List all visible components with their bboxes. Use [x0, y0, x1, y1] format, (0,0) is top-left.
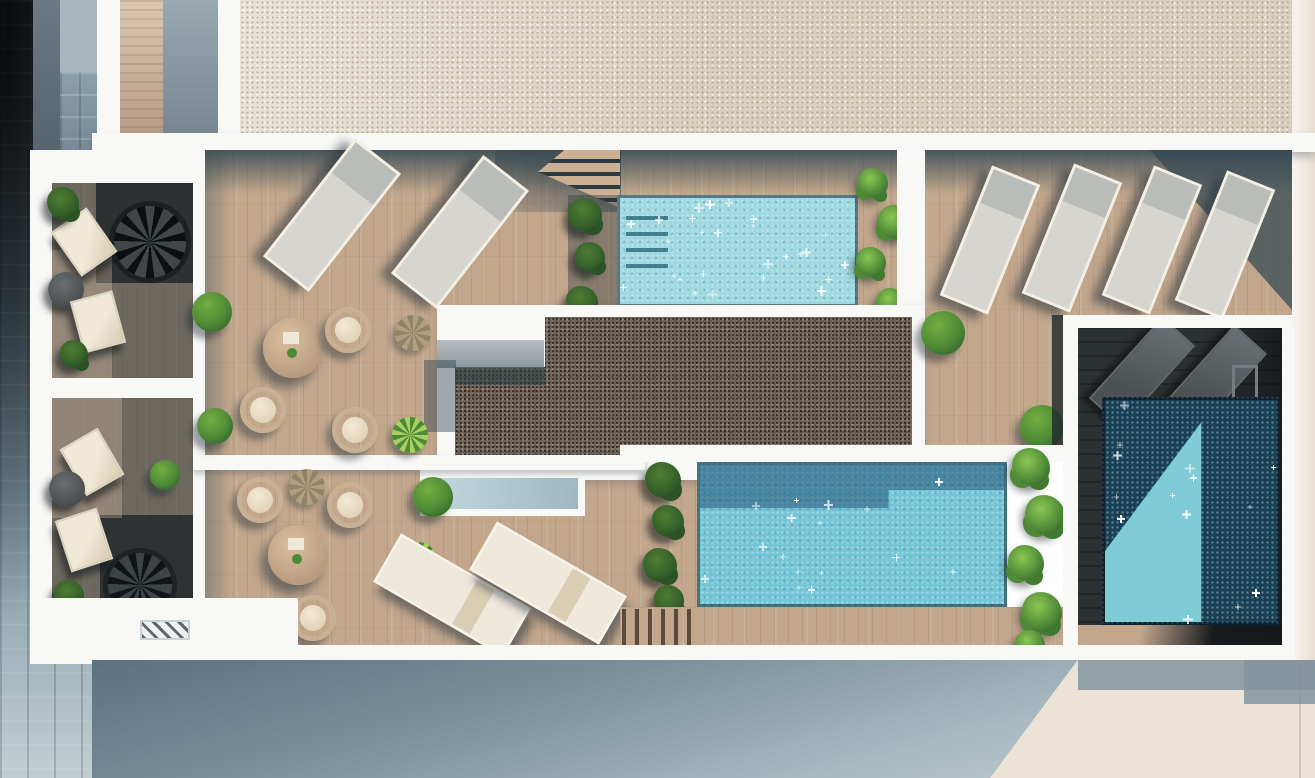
- pool-step: [626, 232, 668, 236]
- neighbor-wall-light: [60, 0, 97, 72]
- water-glint: [714, 229, 722, 237]
- wood-facade-strip: [120, 0, 163, 140]
- water-glint: [783, 254, 789, 260]
- water-glint: [1248, 505, 1252, 509]
- water-glint: [802, 248, 811, 257]
- chair-cushion: [247, 487, 273, 513]
- alcove-north-wall: [52, 150, 205, 183]
- serving-tray: [288, 538, 304, 550]
- water-glint: [1114, 494, 1119, 499]
- water-glint: [1113, 451, 1123, 461]
- wicker-chair: [240, 387, 286, 433]
- water-glint: [893, 554, 900, 561]
- water-glint: [787, 514, 795, 522]
- dried-grass-plant: [395, 315, 431, 351]
- dried-grass-plant: [289, 469, 325, 505]
- parapet-wall: [97, 0, 120, 152]
- water-glint: [761, 275, 767, 281]
- water-glint: [841, 261, 849, 269]
- planter-bush: [413, 477, 453, 517]
- serving-tray: [283, 332, 299, 344]
- chair-cushion: [300, 605, 326, 631]
- main-pool-north-wall: [620, 445, 1078, 462]
- water-glint: [705, 200, 715, 210]
- main-pool: [697, 462, 1007, 607]
- climbing-plant: [1025, 495, 1065, 535]
- spiral-staircase: [114, 206, 186, 278]
- alcove-east-wall: [193, 150, 205, 660]
- climbing-plant: [1008, 545, 1044, 581]
- water-glint: [819, 571, 824, 576]
- wicker-chair: [332, 407, 378, 453]
- water-glint: [950, 569, 956, 575]
- planter-plant: [568, 198, 602, 232]
- planter-bush: [921, 311, 965, 355]
- palm-plant: [392, 417, 428, 453]
- water-glint: [818, 521, 822, 525]
- water-glint: [1117, 515, 1125, 523]
- water-glint: [725, 199, 733, 207]
- chair-cushion: [342, 417, 368, 443]
- climbing-plant: [856, 247, 886, 277]
- water-glint: [666, 239, 671, 244]
- water-glint: [678, 277, 683, 282]
- climbing-plant: [858, 168, 888, 198]
- planter-bush: [150, 460, 180, 490]
- wicker-chair: [327, 482, 373, 528]
- water-glint: [817, 286, 827, 296]
- water-glint: [689, 215, 696, 222]
- water-glint: [763, 259, 773, 269]
- water-glint: [692, 290, 698, 296]
- water-glint: [750, 215, 757, 222]
- water-glint: [620, 284, 627, 291]
- vent-grate: [140, 620, 190, 640]
- right-edge-wall: [1292, 0, 1315, 662]
- wicker-chair: [325, 307, 371, 353]
- gray-facade-strip: [163, 0, 218, 140]
- rooftop-terrace-render: [0, 0, 1315, 778]
- water-glint: [751, 224, 755, 228]
- wicker-chair: [237, 477, 283, 523]
- water-glint: [1120, 401, 1129, 410]
- right-court-north-wall: [1063, 315, 1292, 328]
- water-glint: [701, 271, 707, 277]
- plunge-pool: [1102, 397, 1280, 625]
- right-court-east-wall: [1282, 327, 1295, 660]
- water-glint: [825, 276, 832, 283]
- sunlit-water-triangle: [1105, 400, 1277, 622]
- deck-left-shadow: [205, 150, 231, 660]
- climbing-plant: [1022, 592, 1062, 632]
- planter-plant: [575, 242, 605, 272]
- pool-step: [626, 264, 668, 268]
- plaza-shadow-step: [1244, 660, 1315, 704]
- planter-bush: [192, 292, 232, 332]
- deck-slat-steps: [622, 609, 697, 649]
- wall-shadow: [424, 360, 456, 432]
- wall-seam: [1299, 660, 1301, 778]
- water-glint: [708, 290, 717, 299]
- side-table: [49, 471, 85, 507]
- water-glint: [1252, 589, 1260, 597]
- water-glint: [780, 554, 786, 560]
- water-glint: [1235, 604, 1241, 610]
- planter-plant: [652, 505, 684, 537]
- alcove-west-wall: [30, 150, 52, 648]
- pool-step: [626, 248, 668, 252]
- chair-cushion: [337, 492, 363, 518]
- alcove-divider-wall: [52, 378, 193, 398]
- planter-plant: [645, 462, 681, 498]
- ledge-shadow: [455, 367, 545, 385]
- planter-plant: [60, 340, 88, 368]
- table-plant: [287, 348, 297, 358]
- table-plant: [292, 554, 302, 564]
- water-glint: [701, 575, 709, 583]
- water-glint: [700, 230, 705, 235]
- water-glint: [823, 232, 828, 237]
- water-glint: [672, 274, 676, 278]
- water-glint: [808, 586, 815, 593]
- neighbor-wall-strip: [33, 0, 60, 152]
- water-glint: [627, 220, 635, 228]
- planter-plant: [643, 548, 677, 582]
- top-pool: [617, 195, 858, 307]
- water-glint: [795, 569, 801, 575]
- planter-plant: [47, 187, 79, 219]
- right-court-west-wall: [1063, 315, 1078, 665]
- chair-cushion: [250, 397, 276, 423]
- chair-cushion: [335, 317, 361, 343]
- gravel-roof: [240, 0, 1292, 133]
- water-glint: [694, 203, 703, 212]
- water-glint: [798, 251, 804, 257]
- planter-bush: [197, 408, 233, 444]
- pool-step: [626, 216, 668, 220]
- water-glint: [1117, 442, 1123, 448]
- climbing-plant: [1012, 448, 1050, 486]
- water-glint: [797, 586, 801, 590]
- water-glint: [1271, 465, 1276, 470]
- terrace-divider-wall: [193, 455, 645, 470]
- water-glint: [759, 543, 768, 552]
- pool-shadow-band: [700, 465, 1004, 604]
